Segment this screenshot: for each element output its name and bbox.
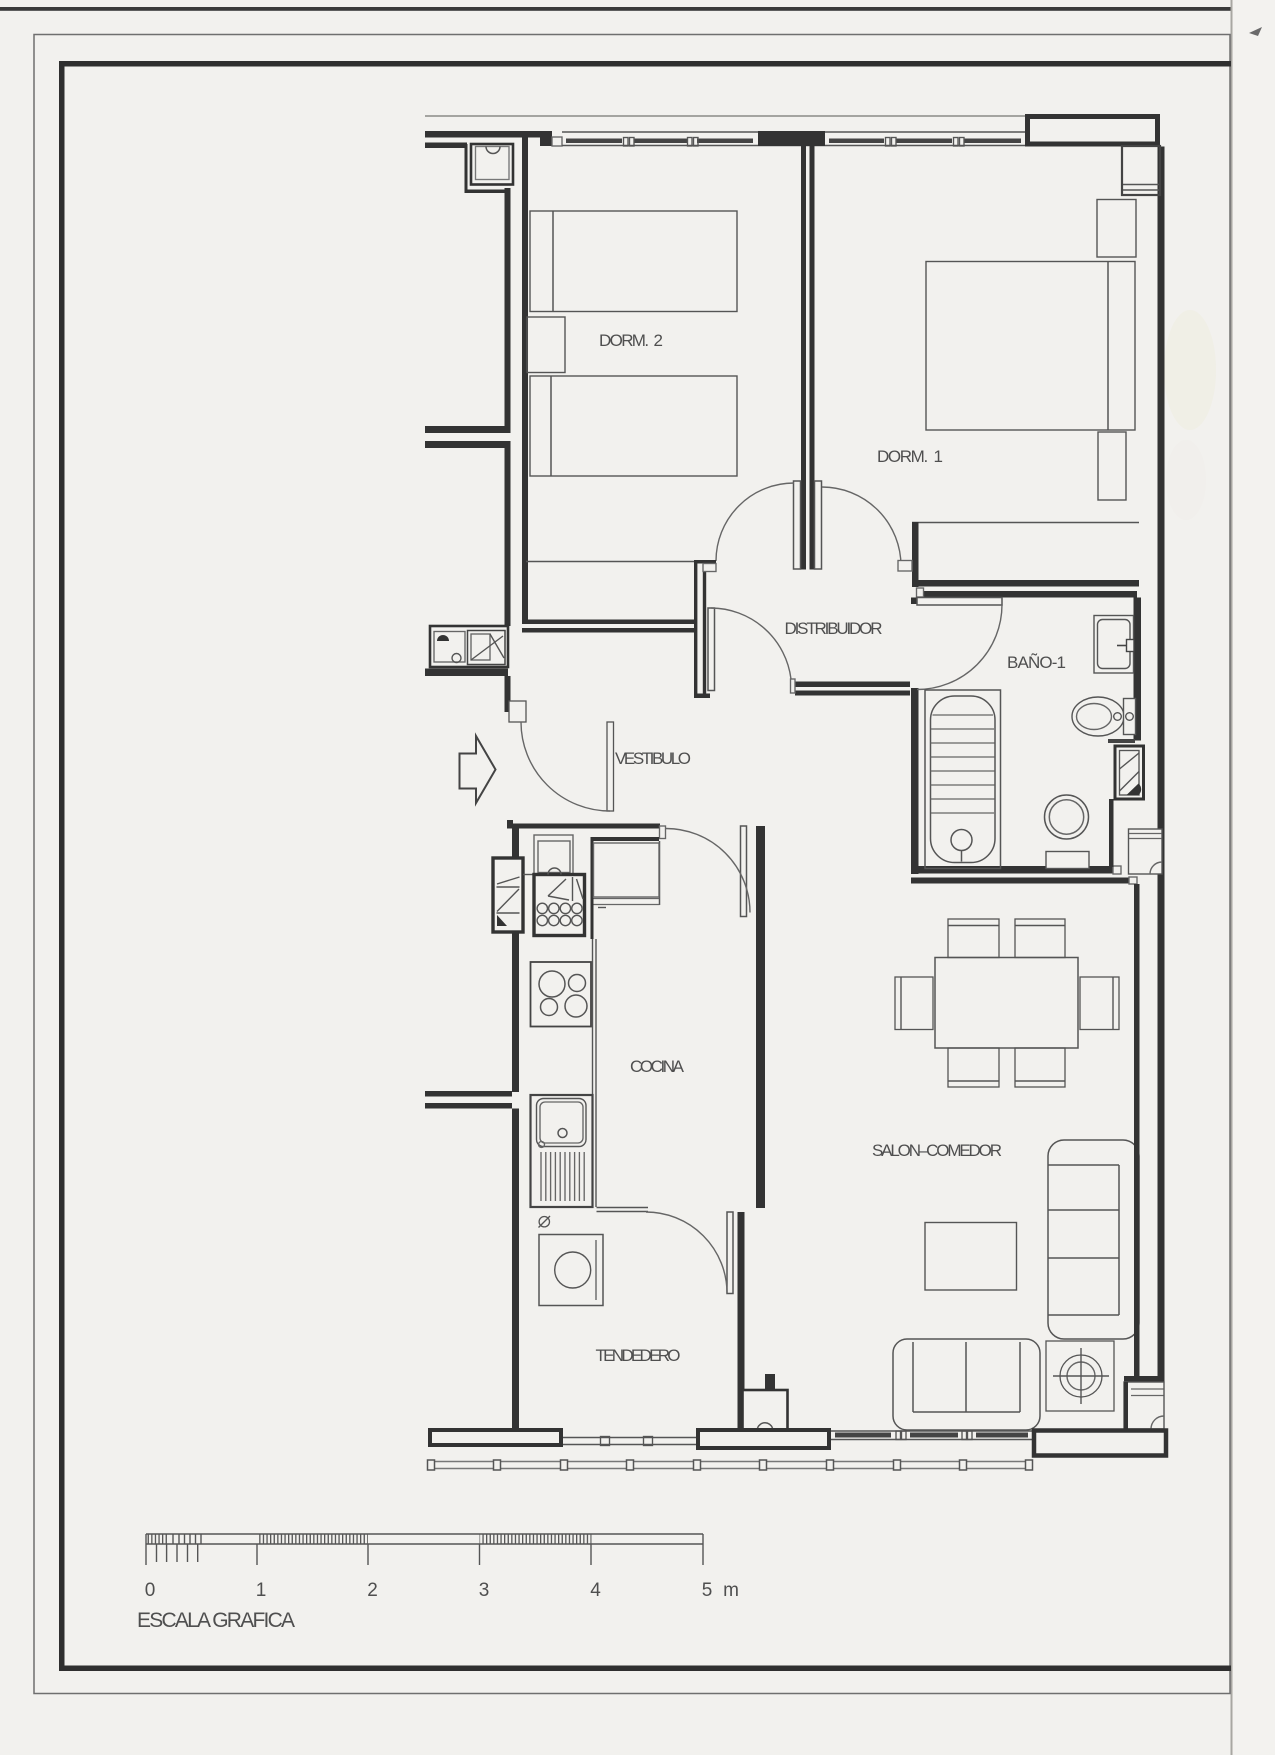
svg-text:COCINA: COCINA	[630, 1057, 685, 1076]
svg-text:0: 0	[145, 1580, 156, 1601]
svg-text:2: 2	[367, 1580, 378, 1601]
svg-text:BAÑO-1: BAÑO-1	[1007, 653, 1066, 672]
svg-text:VESTIBULO: VESTIBULO	[615, 749, 691, 768]
svg-text:5: 5	[702, 1580, 713, 1601]
svg-text:SALON–COMEDOR: SALON–COMEDOR	[872, 1141, 1002, 1160]
svg-text:1: 1	[256, 1580, 267, 1601]
svg-text:TENDEDERO: TENDEDERO	[596, 1346, 681, 1365]
svg-text:m: m	[723, 1580, 739, 1601]
svg-text:DORM. 2: DORM. 2	[599, 331, 663, 350]
svg-text:DISTRIBUIDOR: DISTRIBUIDOR	[785, 619, 883, 638]
svg-text:DORM. 1: DORM. 1	[877, 447, 943, 466]
svg-text:ESCALA GRAFICA: ESCALA GRAFICA	[137, 1609, 295, 1632]
svg-text:4: 4	[590, 1580, 601, 1601]
svg-text:3: 3	[479, 1580, 490, 1601]
